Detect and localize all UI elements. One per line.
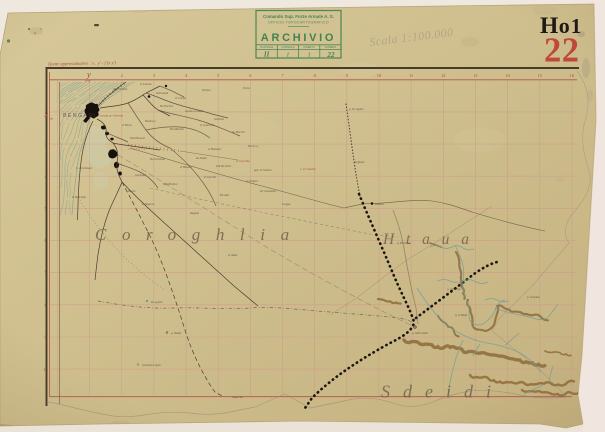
svg-text:2: 2 — [121, 73, 123, 78]
svg-text:ARCHIVIO: ARCHIVIO — [261, 32, 336, 44]
svg-text:q. Nakla: q. Nakla — [171, 331, 182, 335]
svg-text:y: y — [86, 69, 91, 79]
svg-text:Sidi Hussein: Sidi Hussein — [130, 136, 146, 140]
svg-text:9: 9 — [346, 73, 348, 78]
svg-text:es Sellani: es Sellani — [246, 179, 258, 183]
svg-text:Bu Fachra: Bu Fachra — [160, 104, 173, 108]
svg-text:el Coefia: el Coefia — [175, 96, 186, 100]
svg-text:12: 12 — [441, 73, 445, 78]
svg-text:el Magrun: el Magrun — [142, 202, 155, 206]
svg-text:Sidi Chalifa: Sidi Chalifa — [113, 87, 128, 91]
svg-text:11: 11 — [409, 73, 413, 78]
svg-text:bir Semander: bir Semander — [260, 189, 277, 193]
svg-text:bu Msceili: bu Msceili — [232, 130, 245, 134]
svg-text:8: 8 — [314, 73, 316, 78]
svg-text:5: 5 — [217, 73, 219, 78]
svg-text:el Gerrari: el Gerrari — [204, 175, 216, 179]
svg-text:el Buscaiba: el Buscaiba — [72, 195, 87, 199]
svg-text:Comando Sup. Forze Armate A. S: Comando Sup. Forze Armate A. S. — [263, 14, 334, 19]
svg-text:Driana: Driana — [201, 88, 211, 92]
svg-text:CARTELLA: CARTELLA — [281, 45, 295, 49]
svg-text:binghasc: binghasc — [354, 160, 366, 164]
svg-text:UFFICIO TOPOCARTOGRAFICO: UFFICIO TOPOCARTOGRAFICO — [268, 21, 329, 25]
svg-text:16: 16 — [570, 73, 574, 78]
svg-text:Bersis q.: Bersis q. — [248, 144, 259, 148]
svg-text:el Guarscia: el Guarscia — [200, 123, 215, 127]
svg-text:13: 13 — [473, 73, 477, 78]
svg-text:s. el Chadra: s. el Chadra — [300, 167, 316, 171]
svg-text:p. Gamina: p. Gamina — [526, 295, 540, 299]
svg-text:3: 3 — [153, 73, 155, 78]
svg-text:Bu Scemmal: Bu Scemmal — [150, 157, 165, 161]
svg-text:Bersis: Bersis — [128, 189, 136, 193]
svg-text:el Gheriba: el Gheriba — [236, 159, 250, 163]
svg-text:Benina v.: Benina v. — [145, 119, 156, 123]
svg-text:SCAFFALE: SCAFFALE — [260, 45, 274, 49]
svg-text:6: 6 — [249, 73, 251, 78]
svg-text:Gerdina: Gerdina — [214, 117, 224, 121]
svg-text:magarba: magarba — [232, 395, 243, 399]
svg-text:NUMERO: NUMERO — [325, 45, 337, 49]
svg-text:7: 7 — [281, 73, 283, 78]
svg-text:1: 1 — [307, 51, 310, 58]
svg-text:el Hauari: el Hauari — [180, 165, 192, 169]
svg-text:gasr el Gehesc: gasr el Gehesc — [254, 168, 272, 172]
svg-text:el Hamara: el Hamara — [208, 147, 221, 151]
svg-text:a km: a km — [85, 79, 92, 83]
svg-text:sidi Bu Zeid: sidi Bu Zeid — [216, 164, 231, 168]
svg-text:22: 22 — [326, 51, 335, 59]
svg-text:1: 1 — [286, 51, 289, 58]
svg-text:Regima: Regima — [189, 211, 200, 215]
svg-text:u. Aghelina: u. Aghelina — [447, 287, 461, 291]
svg-text:el Berca: el Berca — [122, 123, 132, 127]
svg-text:Benina: Benina — [375, 202, 384, 206]
svg-text:q. bu sagher: q. bu sagher — [349, 107, 365, 111]
svg-text:Sdeidi: Sdeidi — [381, 382, 504, 402]
svg-text:Gariunes: Gariunes — [135, 173, 147, 177]
svg-text:INSERTO: INSERTO — [303, 45, 314, 49]
svg-text:15: 15 — [538, 73, 542, 78]
svg-text:q. el Beda: q. el Beda — [455, 313, 468, 317]
svg-text:10: 10 — [377, 73, 381, 78]
svg-text:Tocra: Tocra — [243, 86, 250, 90]
svg-text:q. Bu Simia: q. Bu Simia — [397, 241, 411, 245]
svg-text:Htaua: Htaua — [382, 231, 481, 248]
svg-text:strada per Benina: strada per Benina — [100, 114, 123, 118]
svg-text:II: II — [263, 51, 270, 59]
svg-text:Bu Mariam: Bu Mariam — [170, 127, 185, 131]
svg-text:bu Stada: bu Stada — [196, 156, 207, 160]
svg-text:Gerdes el Abid: Gerdes el Abid — [185, 109, 203, 113]
svg-text:x + x + x + x: x + x + x + x — [127, 147, 145, 151]
svg-text:BENGASI: BENGASI — [63, 113, 96, 119]
svg-text:Bu Atni: Bu Atni — [220, 193, 229, 197]
svg-text:scegga: scegga — [282, 202, 291, 206]
svg-text:el Fuehat: el Fuehat — [140, 82, 152, 86]
svg-text:Sidi Daud: Sidi Daud — [156, 91, 169, 95]
svg-text:q. Sidi Gader: q. Sidi Gader — [412, 331, 429, 335]
svg-text:S. es Selmani: S. es Selmani — [76, 166, 92, 170]
svg-text:x: x — [44, 110, 49, 119]
svg-text:22: 22 — [544, 32, 580, 70]
svg-text:Ghemines ngeb: Ghemines ngeb — [142, 363, 161, 367]
svg-text:bu aguila: bu aguila — [151, 300, 163, 304]
svg-text:Coroghlia: Coroghlia — [95, 225, 305, 244]
svg-text:Sidi Brahim: Sidi Brahim — [163, 182, 178, 186]
svg-text:el Abiar: el Abiar — [228, 253, 239, 257]
